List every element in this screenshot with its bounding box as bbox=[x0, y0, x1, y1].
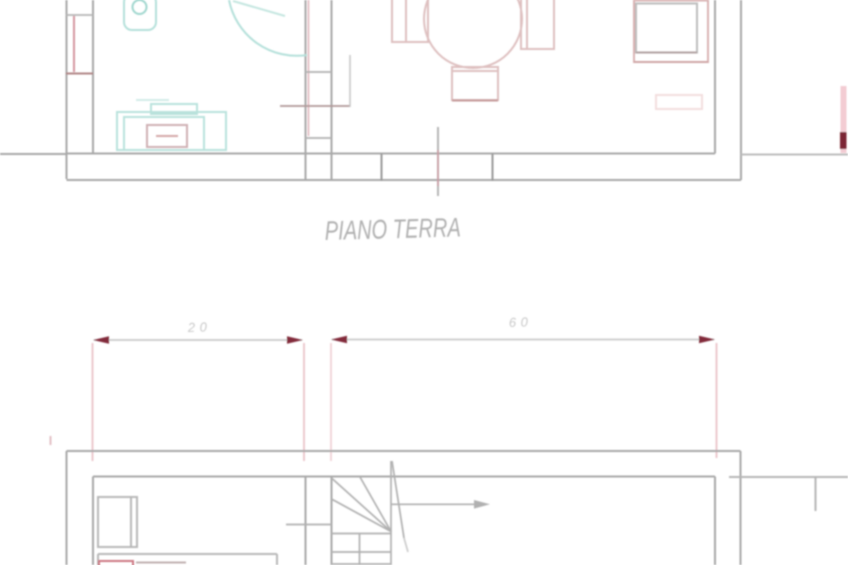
svg-text:60: 60 bbox=[509, 314, 529, 330]
svg-text:PIANO TERRA: PIANO TERRA bbox=[324, 212, 461, 246]
svg-text:20: 20 bbox=[187, 319, 208, 335]
